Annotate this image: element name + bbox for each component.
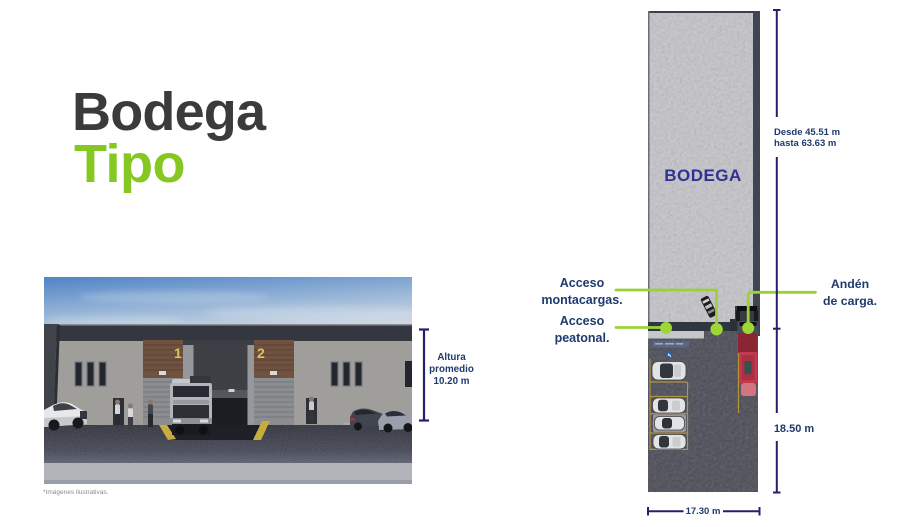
svg-text:BODEGA: BODEGA	[664, 166, 742, 185]
svg-text:1: 1	[174, 345, 182, 361]
svg-text:2: 2	[257, 345, 265, 361]
